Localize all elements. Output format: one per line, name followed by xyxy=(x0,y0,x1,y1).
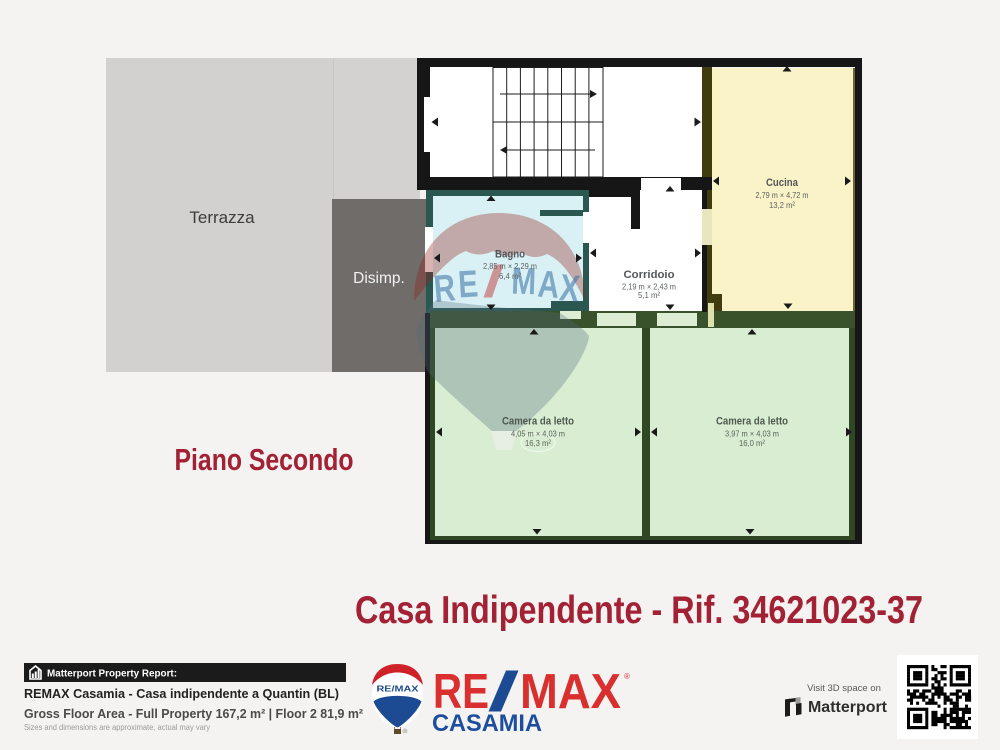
svg-text:A: A xyxy=(536,263,560,307)
svg-text:RE/MAX: RE/MAX xyxy=(377,684,419,694)
svg-text:2,79 m × 4,72 m: 2,79 m × 4,72 m xyxy=(756,190,809,200)
svg-text:Corridoio: Corridoio xyxy=(624,269,675,281)
svg-text:CASAMIA: CASAMIA xyxy=(432,710,542,737)
svg-text:Bagno: Bagno xyxy=(495,249,525,261)
svg-text:Visit 3D space on: Visit 3D space on xyxy=(807,683,881,694)
svg-text:Gross Floor Area - Full Proper: Gross Floor Area - Full Property 167,2 m… xyxy=(24,706,364,721)
svg-text:Sizes and dimensions are appro: Sizes and dimensions are approximate, ac… xyxy=(24,722,211,732)
svg-text:Terrazza: Terrazza xyxy=(189,208,255,227)
svg-text:Piano Secondo: Piano Secondo xyxy=(175,442,354,477)
svg-text:Camera da letto: Camera da letto xyxy=(502,416,574,428)
svg-text:E: E xyxy=(457,263,479,307)
svg-text:Casa Indipendente - Rif. 34621: Casa Indipendente - Rif. 34621023-37 xyxy=(355,589,923,632)
svg-text:5,1 m²: 5,1 m² xyxy=(638,290,660,300)
svg-text:2,85 m × 2,29 m: 2,85 m × 2,29 m xyxy=(483,261,537,271)
svg-text:13,2 m²: 13,2 m² xyxy=(769,200,795,210)
svg-text:Cucina: Cucina xyxy=(766,177,799,189)
svg-text:Matterport: Matterport xyxy=(808,699,887,716)
svg-text:Disimp.: Disimp. xyxy=(353,270,405,287)
svg-text:Matterport Property Report:: Matterport Property Report: xyxy=(47,668,177,680)
svg-text:6,4 m²: 6,4 m² xyxy=(499,271,521,281)
svg-text:X: X xyxy=(558,267,582,311)
svg-text:16,3 m²: 16,3 m² xyxy=(525,438,551,448)
svg-text:REMAX Casamia - Casa indipende: REMAX Casamia - Casa indipendente a Quan… xyxy=(24,687,339,701)
svg-text:Camera da letto: Camera da letto xyxy=(716,416,788,428)
svg-text:4,05 m × 4,03 m: 4,05 m × 4,03 m xyxy=(511,429,565,439)
svg-text:3,97 m × 4,03 m: 3,97 m × 4,03 m xyxy=(725,429,779,439)
svg-text:16,0 m²: 16,0 m² xyxy=(739,438,765,448)
svg-text:®: ® xyxy=(624,672,630,681)
svg-text:R: R xyxy=(432,267,457,311)
